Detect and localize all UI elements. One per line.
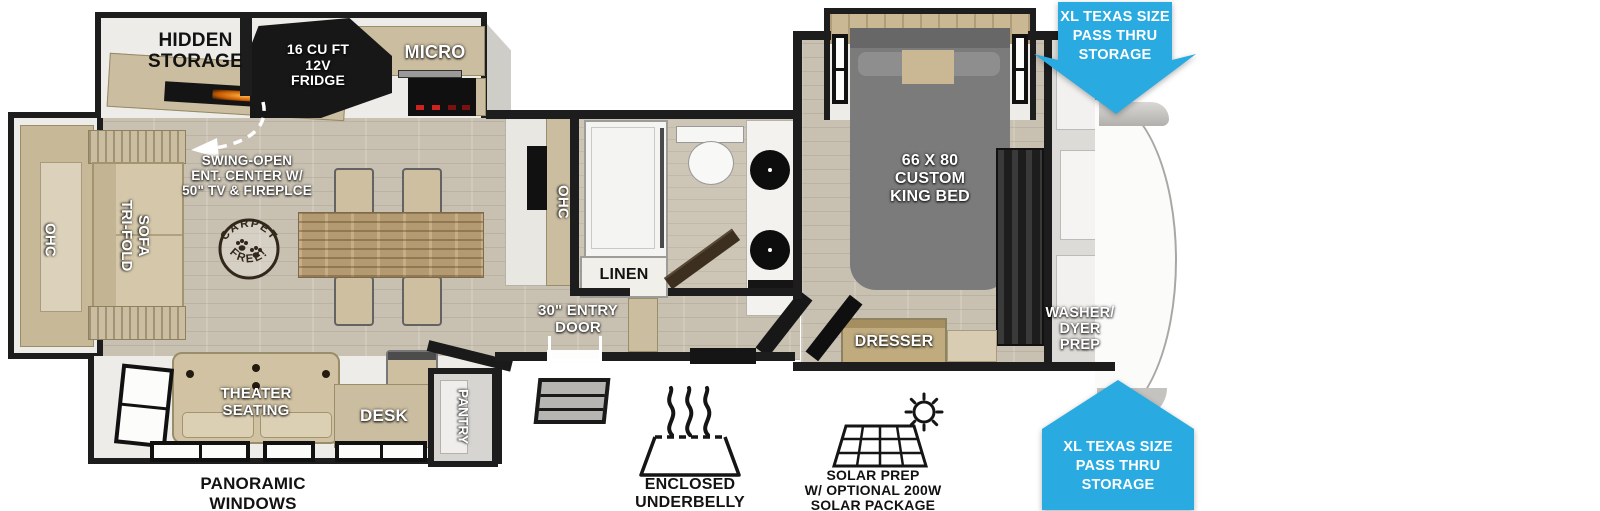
dining-chair (402, 168, 442, 216)
front-cap (1095, 98, 1177, 422)
entry-door (548, 336, 602, 362)
heating-pad-icon (625, 387, 755, 479)
bed-runner (902, 50, 954, 84)
shower (584, 120, 668, 258)
bedroom-bottom-wall (793, 362, 1115, 371)
shower-glass (660, 128, 664, 248)
burner (416, 105, 424, 110)
dining-chair (334, 276, 374, 326)
bath-top-wall (486, 110, 802, 119)
step-tread (540, 394, 604, 397)
theater-label: THEATER SEATING (186, 386, 326, 420)
panoramic-windows-label: PANORAMIC WINDOWS (163, 474, 343, 511)
bottom-wall-left (495, 352, 547, 361)
cupholder (186, 370, 194, 378)
bedroom-left-wall (793, 31, 802, 299)
exterior-corner (487, 24, 511, 112)
underbelly-label: ENCLOSED UNDERBELLY W/ 12V HEATING PADS (590, 476, 790, 511)
desk-label: DESK (334, 406, 434, 425)
fridge-label: 16 CU FT 12V FRIDGE (258, 42, 378, 89)
pantry-label: PANTRY (448, 376, 478, 458)
dining-table (298, 212, 484, 278)
sofa-label: TRI-FOLD SOFA (112, 178, 156, 294)
bedroom-window-left (832, 34, 848, 104)
panoramic-window (150, 441, 250, 462)
panoramic-window (335, 441, 427, 462)
sink-drain (768, 248, 772, 252)
bedroom-window-right (1012, 34, 1028, 104)
step-tread (539, 408, 603, 411)
swing-open-note: SWING-OPEN ENT. CENTER W/ 50" TV & FIREP… (162, 153, 332, 198)
burner (462, 105, 470, 110)
burner (432, 105, 440, 110)
bench (947, 330, 997, 362)
dining-chair (334, 168, 374, 216)
bed-label: 66 X 80 CUSTOM KING BED (850, 152, 1010, 206)
rv-floorplan: OHC TRI-FOLD SOFA HIDDEN STORAGE 16 CU F… (0, 0, 1600, 511)
entry-steps (534, 378, 611, 424)
cupholder (252, 364, 260, 372)
pass-thru-top-label: XL TEXAS SIZE PASS THRU STORAGE (1040, 8, 1190, 65)
hidden-storage-label: HIDDEN STORAGE (118, 30, 273, 73)
desk-chair-back (388, 352, 436, 360)
dresser-label: DRESSER (841, 333, 947, 351)
pass-thru-bottom-label: XL TEXAS SIZE PASS THRU STORAGE (1052, 438, 1184, 495)
micro-label: MICRO (385, 42, 485, 62)
panoramic-window-left (114, 364, 174, 449)
sun-rays (906, 394, 942, 430)
linen-label: LINEN (580, 266, 668, 284)
bath-bottom-wall-right (668, 288, 801, 296)
solar-label: SOLAR PREP W/ OPTIONAL 200W SOLAR PACKAG… (778, 468, 968, 511)
toilet-bowl (688, 141, 734, 185)
dining-chair (402, 276, 442, 326)
panoramic-window (263, 441, 315, 462)
bath-bottom-wall-left (570, 288, 630, 296)
headboard (850, 28, 1010, 48)
washer-dryer-label: WASHER/ DYER PREP (1030, 305, 1130, 354)
entry-door-label: 30" ENTRY DOOR (518, 303, 638, 337)
swing-open-arrow (185, 98, 280, 160)
sofa-armrest-bottom (88, 306, 186, 340)
kitchen-window (527, 146, 547, 210)
dresser-top-edge (843, 320, 945, 328)
carpet-free-stamp: CARPET FREE! (217, 217, 281, 281)
sink-drain (768, 168, 772, 172)
cupholder (322, 370, 330, 378)
shower-inner (591, 127, 655, 249)
burner (448, 105, 456, 110)
solar-icon (832, 392, 946, 472)
kitchen-ohc-label: OHC (547, 162, 577, 242)
rear-ohc-label: OHC (34, 200, 64, 280)
stove (408, 78, 476, 116)
hall-threshold (690, 348, 756, 364)
range-vent (398, 70, 462, 78)
